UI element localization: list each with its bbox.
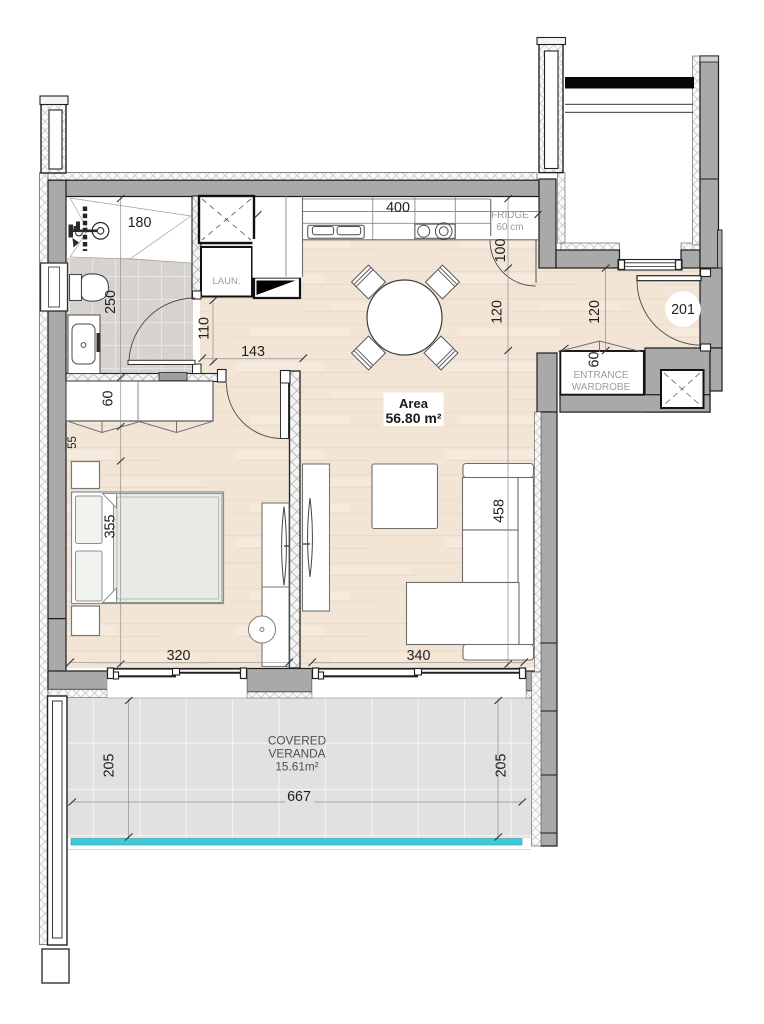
svg-text:667: 667 [287, 789, 311, 805]
svg-text:400: 400 [386, 200, 410, 216]
svg-text:LAUN.: LAUN. [213, 276, 241, 287]
svg-text:205: 205 [494, 754, 510, 778]
svg-text:340: 340 [407, 648, 431, 664]
svg-text:120: 120 [490, 300, 506, 324]
svg-text:100: 100 [493, 239, 509, 263]
svg-text:15.61m²: 15.61m² [275, 760, 318, 774]
svg-text:180: 180 [128, 215, 152, 231]
svg-text:60 cm: 60 cm [496, 222, 523, 233]
svg-text:320: 320 [167, 648, 191, 664]
svg-text:143: 143 [241, 344, 265, 360]
svg-text:Area: Area [399, 396, 429, 411]
svg-text:205: 205 [102, 754, 118, 778]
svg-text:60: 60 [101, 391, 117, 407]
svg-text:56.80 m²: 56.80 m² [385, 410, 441, 426]
svg-text:55: 55 [67, 436, 79, 449]
svg-text:60: 60 [587, 352, 603, 368]
svg-text:458: 458 [492, 499, 508, 523]
svg-text:VERANDA: VERANDA [268, 747, 325, 761]
svg-text:COVERED: COVERED [268, 734, 326, 748]
svg-text:120: 120 [587, 300, 603, 324]
svg-text:201: 201 [671, 302, 695, 318]
svg-text:355: 355 [103, 515, 119, 539]
svg-text:WARDROBE: WARDROBE [572, 382, 631, 393]
svg-text:ENTRANCE: ENTRANCE [573, 370, 628, 381]
svg-text:250: 250 [103, 290, 119, 314]
svg-text:110: 110 [197, 317, 213, 340]
svg-text:FRIDGE: FRIDGE [491, 210, 529, 221]
